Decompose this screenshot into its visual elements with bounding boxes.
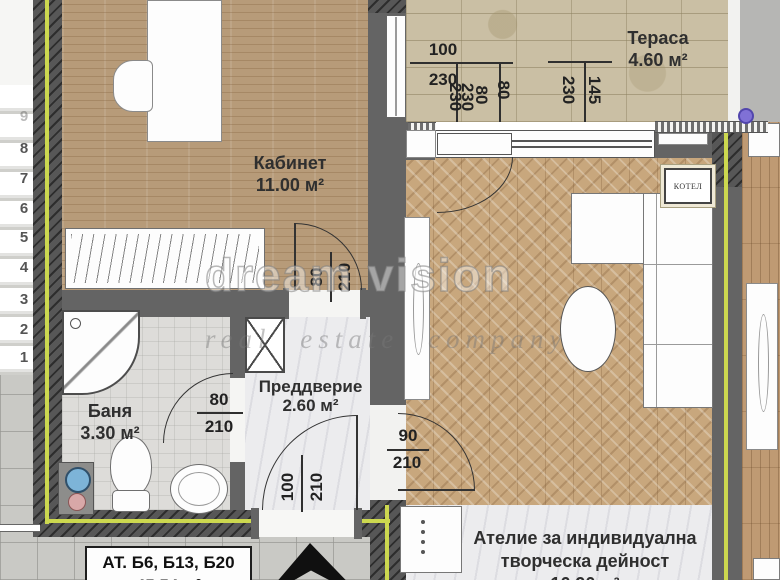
dimension-text: 210 [196,417,242,437]
toilet-tank [112,490,150,512]
sofa-seam [656,194,657,407]
dimension-text: 230 [558,65,578,115]
sofa-seam [644,264,712,265]
room-area-preddverie: 2.60 м² [248,396,373,416]
coffee-table [560,286,616,372]
boiler-box: КОТЕЛ [664,168,712,204]
insulation-band [655,121,768,133]
dimension-line [410,62,513,64]
neighbor-wall-top-right [740,0,780,122]
toilet-bowl [110,436,152,496]
unit-title-box: АТ. Б6, Б13, Б20 45.54 м² [85,546,252,580]
room-label-atelie-line1: Ателие за индивидуална [445,528,725,549]
watermark-logo: dream vision [205,248,513,302]
wall [230,462,245,510]
balcony-window-glazing [512,140,652,142]
terrace-edge-gap [728,0,740,122]
washbasin-drain [68,493,86,511]
room-area-banya: 3.30 м² [60,423,160,444]
dimension-text: 90 [386,426,430,446]
dimension-text: 80 [196,390,242,410]
dimension-line [301,455,303,512]
tall-cabinet-east-neighbor [746,283,778,450]
door-jamb [251,508,259,539]
stove-knob [421,540,425,544]
window-sill [406,130,436,158]
door-jamb [354,508,362,539]
stove-knob [421,520,425,524]
bathroom-sink [170,464,228,514]
watermark-tagline: real estate company [205,324,567,355]
room-label-preddverie: Преддверие [248,377,373,397]
room-label-banya: Баня [60,401,160,422]
room-label-atelie-line2: творческа дейност [445,551,725,572]
railing [0,524,40,532]
floor-plan: 9 8 7 6 5 4 3 2 1 [0,0,780,580]
cabinet-plant-decor [758,314,769,412]
room-area-atelie: 16.90 м² [445,574,725,580]
room-area-kabinet: 11.00 м² [238,175,342,196]
room-label-kabinet: Кабинет [238,153,342,174]
entry-door-opening [255,510,360,537]
office-chair [113,60,153,112]
marker-dot [738,108,754,124]
boundary-line [385,505,389,580]
balcony-window-glazing [512,146,652,148]
washbasin-bowl [65,467,91,493]
boundary-line [45,0,49,524]
balcony-door-leaf [437,133,512,155]
boiler-label: КОТЕЛ [674,182,703,191]
desk [147,0,222,142]
window-sill [658,133,708,145]
tall-cabinet-west [404,217,430,400]
stove-knob [421,550,425,554]
neighbor-bottom-sill [753,558,780,580]
boundary-line [724,133,728,580]
unit-area: 45.54 м² [87,576,250,580]
sink-basin [178,472,220,506]
dimension-text: 100 [418,40,468,60]
dimension-text: 210 [307,462,327,512]
room-area-terasa: 4.60 м² [608,50,708,71]
shower-head [70,318,81,329]
dimension-text: 80 [471,70,491,120]
stove-knob [421,530,425,534]
dimension-text: 80 [493,65,513,115]
room-label-terasa: Тераса [608,28,708,49]
dimension-line [548,61,612,63]
unit-title: АТ. Б6, Б13, Б20 [87,553,250,573]
dimension-line [197,412,243,414]
sofa-chaise [571,193,645,264]
dimension-line [387,449,429,451]
dimension-text: 210 [384,453,430,473]
dimension-text: 145 [584,65,604,115]
dimension-text: 100 [278,462,298,512]
kabinet-window-glazing [395,17,397,116]
wall [368,0,406,13]
sofa-seam [644,344,712,345]
sofa-body [643,193,713,408]
